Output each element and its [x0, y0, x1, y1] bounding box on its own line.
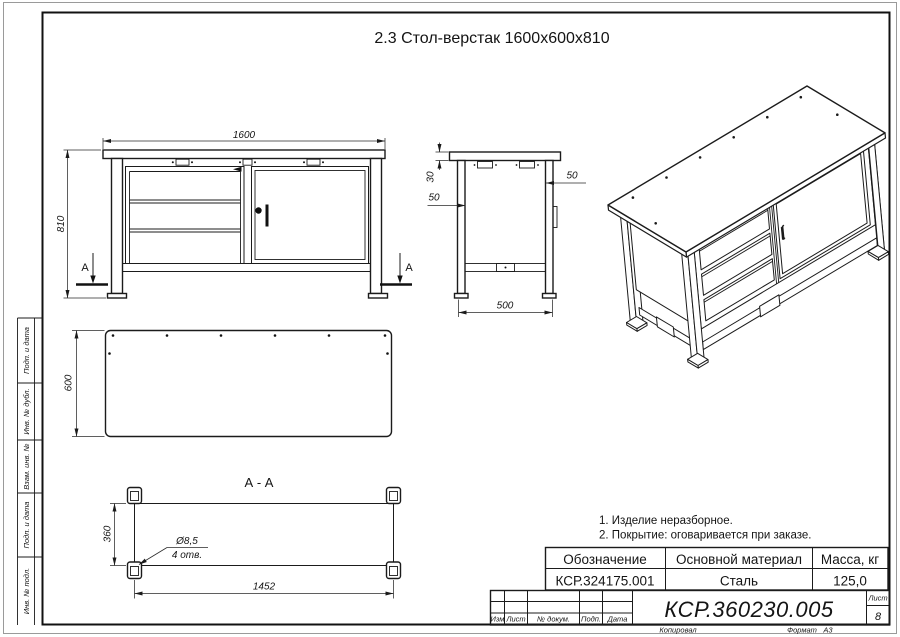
section-title: А - А	[245, 475, 274, 490]
doc-number: КСР.360230.005	[664, 597, 833, 622]
isometric-view	[608, 86, 889, 368]
dim-50-right: 50	[566, 171, 578, 182]
tb-col-list: Лист	[505, 615, 525, 624]
spec-value-material: Сталь	[720, 574, 758, 589]
dim-600: 600	[64, 374, 75, 391]
copied-label: Копировал	[659, 626, 697, 635]
dim-810: 810	[56, 215, 67, 232]
hole-dia-label: Ø8,5	[175, 536, 198, 547]
note-1: 1. Изделие неразборное.	[599, 515, 733, 527]
title-block: Изм Лист № докум. Подп. Дата КСР.360230.…	[491, 591, 890, 635]
margin-label: Инв. № подл.	[22, 568, 31, 615]
tb-col-dokum: № докум.	[537, 615, 570, 624]
spec-header-mass: Масса, кг	[821, 552, 879, 567]
format-label: Формат	[787, 626, 817, 635]
format-value: А3	[822, 626, 833, 635]
dim-1452: 1452	[253, 582, 276, 593]
sheet-value: 8	[875, 611, 882, 623]
margin-label: Взам. инв. №	[22, 443, 31, 489]
sheet-label: Лист	[867, 594, 887, 603]
tb-col-data: Дата	[607, 615, 628, 624]
spec-value-designation: КСР.324175.001	[556, 574, 655, 589]
note-2: 2. Покрытие: оговаривается при заказе.	[599, 530, 811, 542]
dim-500: 500	[497, 301, 514, 312]
section-view: А - А 360 1452 Ø8,5 4 отв.	[103, 475, 401, 599]
margin-label: Подп. и дата	[22, 502, 31, 549]
hole-qty-label: 4 отв.	[172, 550, 202, 561]
drawing-sheet: Подп. и дата Инв. № дубл. Взам. инв. № П…	[0, 0, 900, 637]
top-view: 600	[64, 331, 392, 437]
margin-label: Инв. № дубл.	[22, 388, 31, 434]
dim-30: 30	[426, 171, 437, 183]
dim-50-left: 50	[428, 193, 440, 204]
door-handle	[266, 205, 269, 227]
front-view: 1600 810 А А	[56, 130, 413, 298]
dim-1600: 1600	[233, 130, 256, 141]
spec-value-mass: 125,0	[833, 574, 867, 589]
tb-col-podp: Подп.	[581, 615, 601, 624]
margin-column: Подп. и дата Инв. № дубл. Взам. инв. № П…	[18, 318, 43, 625]
drawing-canvas: Подп. и дата Инв. № дубл. Взам. инв. № П…	[0, 0, 900, 637]
spec-header-designation: Обозначение	[563, 552, 647, 567]
tb-col-izm: Изм	[491, 615, 505, 624]
spec-header-material: Основной материал	[676, 552, 802, 567]
margin-label: Подп. и дата	[22, 327, 31, 374]
spec-table: Обозначение Основной материал Масса, кг …	[546, 548, 889, 591]
section-mark-right: А	[405, 262, 413, 274]
door-lock	[255, 207, 261, 213]
side-view: 30 50 50 500	[426, 143, 587, 318]
drawing-title: 2.3 Стол-верстак 1600х600х810	[374, 30, 609, 47]
notes: 1. Изделие неразборное. 2. Покрытие: ого…	[599, 515, 811, 542]
dim-360: 360	[103, 525, 114, 542]
section-mark-left: А	[81, 262, 89, 274]
